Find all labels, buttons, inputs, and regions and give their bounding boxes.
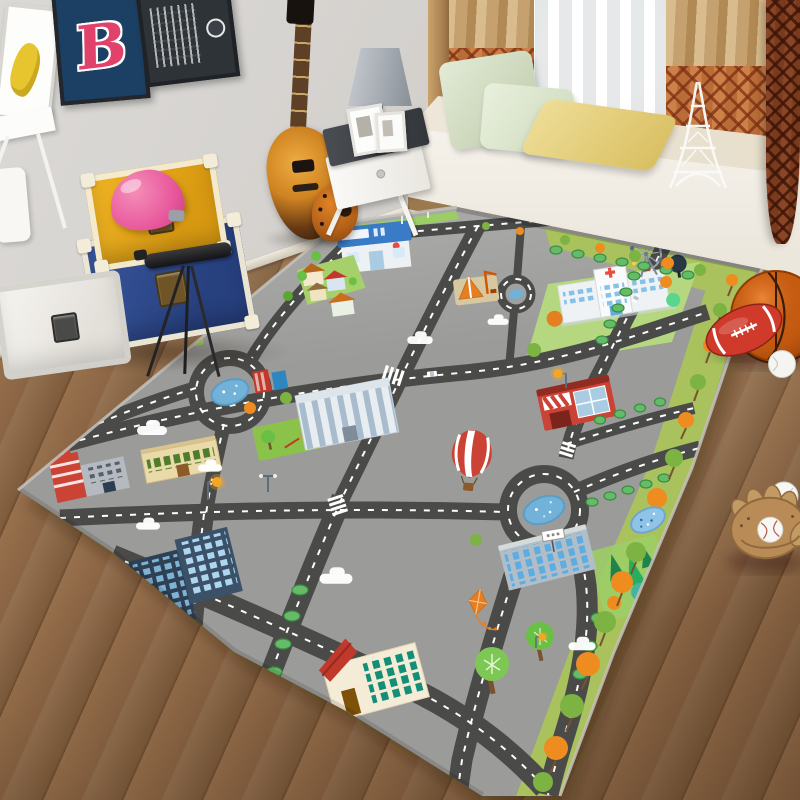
bedroom-photo: B	[0, 0, 800, 800]
baseball-glove	[725, 479, 800, 563]
sports-gear	[0, 0, 800, 800]
white-ball	[769, 351, 796, 378]
